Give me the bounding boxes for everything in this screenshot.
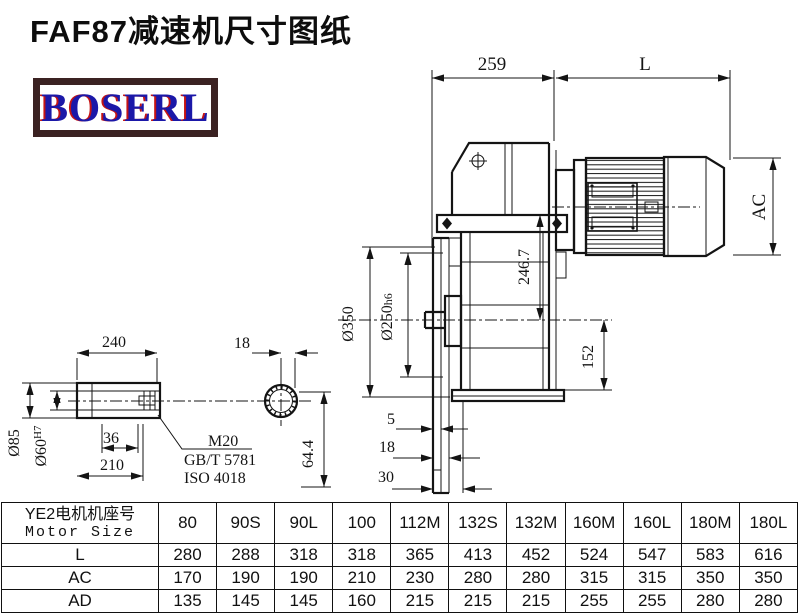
table-cell: 255 (623, 590, 681, 613)
table-row-AC: AC 170 190 190 210 230 280 280 315 315 3… (2, 567, 798, 590)
dim-label-5: 5 (387, 411, 395, 428)
dim-36: 36 (102, 424, 138, 453)
table-cell: 413 (449, 544, 507, 567)
dim-240: 240 (77, 334, 157, 382)
dim-label-18: 18 (379, 439, 395, 456)
dim-label-240: 240 (102, 334, 126, 351)
col-header: 132S (449, 503, 507, 544)
motor (552, 157, 724, 278)
row-label: AC (2, 567, 159, 590)
table-row-AD: AD 135 145 145 160 215 215 215 255 255 2… (2, 590, 798, 613)
dim-152: 152 (560, 320, 612, 390)
thread-callout: M20 GB/T 5781 ISO 4018 (158, 415, 256, 487)
output-flange (425, 238, 463, 493)
oil-plug-icon (469, 152, 487, 170)
col-header: 80 (159, 503, 217, 544)
table-cell: 350 (739, 567, 797, 590)
table-cell: 145 (217, 590, 275, 613)
dim-label-250h6: Ø250h6 (379, 293, 396, 341)
dim-label-644: 64.4 (300, 440, 317, 468)
table-cell: 280 (507, 567, 565, 590)
table-cell: 280 (739, 590, 797, 613)
col-header: 160M (565, 503, 623, 544)
table-cell: 524 (565, 544, 623, 567)
dim-label-210: 210 (100, 457, 124, 474)
col-header: 180M (681, 503, 739, 544)
reducer-housing (437, 143, 567, 401)
table-cell: 230 (391, 567, 449, 590)
table-cell: 280 (681, 590, 739, 613)
col-header: 132M (507, 503, 565, 544)
dim-label-18-circle: 18 (234, 335, 250, 352)
dim-18-circle: 18 (234, 335, 318, 388)
dim-label-259: 259 (478, 54, 507, 75)
dim-label-85: Ø85 (6, 429, 23, 457)
row-label: L (2, 544, 159, 567)
thread-label: M20 (208, 433, 238, 450)
standard-gb-label: GB/T 5781 (184, 452, 256, 469)
col-header: 112M (391, 503, 449, 544)
col-header: 90L (275, 503, 333, 544)
dim-5-18-30: 5 18 30 (378, 411, 492, 489)
dim-label-L: L (639, 54, 651, 75)
shaft-end-view (265, 378, 297, 426)
table-cell: 315 (565, 567, 623, 590)
table-cell: 318 (275, 544, 333, 567)
table-cell: 350 (681, 567, 739, 590)
table-cell: 318 (333, 544, 391, 567)
table-cell: 135 (159, 590, 217, 613)
table-cell: 547 (623, 544, 681, 567)
table-cell: 215 (507, 590, 565, 613)
table-header-row: YE2电机机座号 Motor Size 80 90S 90L 100 112M … (2, 503, 798, 544)
table-cell: 145 (275, 590, 333, 613)
standard-iso-label: ISO 4018 (184, 470, 246, 487)
table-cell: 583 (681, 544, 739, 567)
table-cell: 315 (623, 567, 681, 590)
dim-AC: AC (733, 158, 781, 255)
shaft-detail-view: 240 Ø85 (6, 334, 331, 487)
main-view: 259 L (338, 54, 781, 493)
dim-label-60H7: Ø60H7 (32, 425, 50, 467)
header-en: Motor Size (2, 524, 158, 542)
table-cell: 280 (159, 544, 217, 567)
table-cell: 288 (217, 544, 275, 567)
table-cell: 616 (739, 544, 797, 567)
col-header: 180L (739, 503, 797, 544)
row-label: AD (2, 590, 159, 613)
dim-label-AC: AC (749, 194, 770, 220)
table-cell: 452 (507, 544, 565, 567)
table-cell: 170 (159, 567, 217, 590)
table-cell: 215 (391, 590, 449, 613)
table-cell: 210 (333, 567, 391, 590)
dim-label-30: 30 (378, 469, 394, 486)
motor-size-table: YE2电机机座号 Motor Size 80 90S 90L 100 112M … (1, 502, 798, 613)
dim-label-246: 246.7 (516, 249, 533, 285)
dimension-drawing: 259 L (0, 0, 800, 502)
table-cell: 365 (391, 544, 449, 567)
table-row-L: L 280 288 318 318 365 413 452 524 547 58… (2, 544, 798, 567)
dim-60H7: Ø60H7 (32, 391, 94, 467)
col-header: 160L (623, 503, 681, 544)
table-cell: 190 (217, 567, 275, 590)
dim-label-152: 152 (580, 345, 597, 369)
motor-size-header: YE2电机机座号 Motor Size (2, 503, 159, 544)
header-cn: YE2电机机座号 (2, 505, 158, 524)
dim-label-350: Ø350 (340, 306, 357, 342)
dim-259-L: 259 L (432, 54, 730, 248)
table-cell: 190 (275, 567, 333, 590)
table-cell: 160 (333, 590, 391, 613)
table-cell: 215 (449, 590, 507, 613)
dim-246: 246.7 (516, 215, 540, 320)
table-cell: 280 (449, 567, 507, 590)
dim-644: 64.4 (299, 392, 331, 487)
col-header: 90S (217, 503, 275, 544)
col-header: 100 (333, 503, 391, 544)
table-cell: 255 (565, 590, 623, 613)
drawing-sheet: FAF87减速机尺寸图纸 BOSERL (0, 0, 800, 614)
dim-label-36: 36 (103, 430, 119, 447)
